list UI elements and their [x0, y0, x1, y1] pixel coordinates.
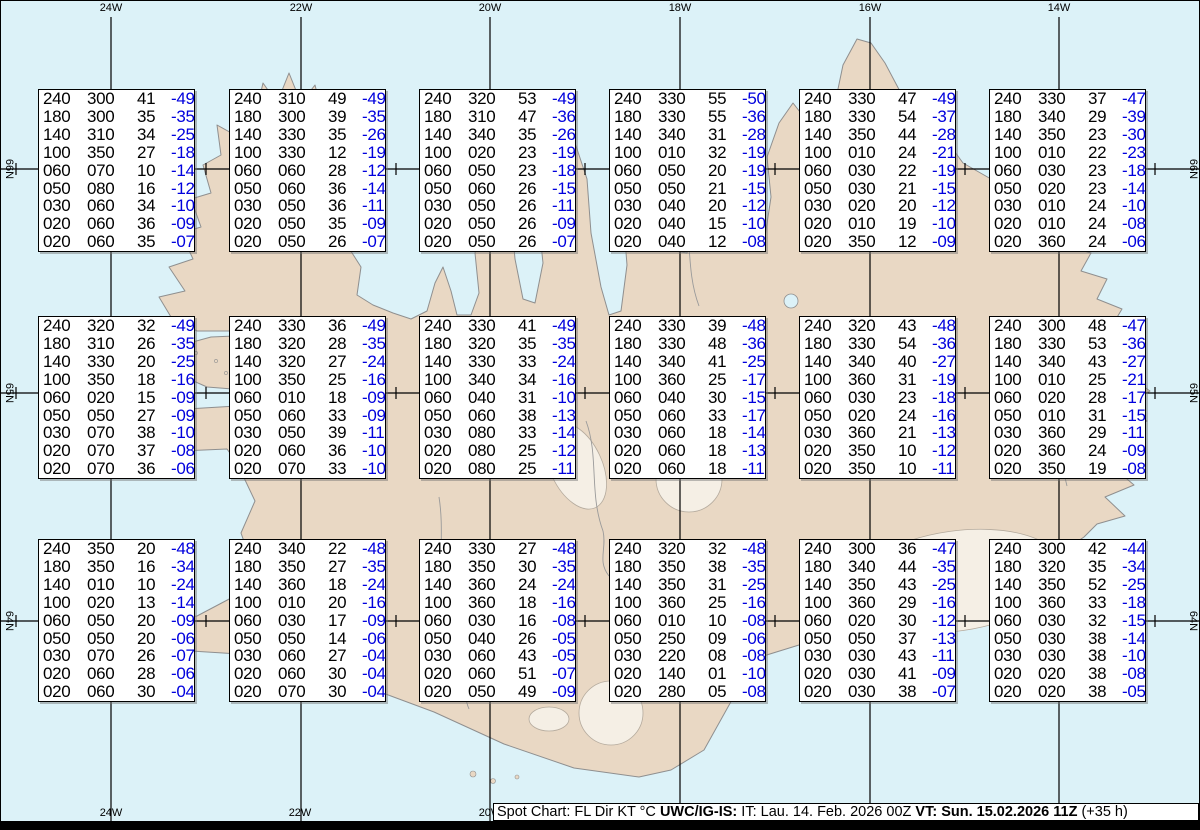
fl-value: 100 — [804, 144, 848, 162]
spot-box: 24032032-4818035038-3514035031-251003602… — [609, 539, 766, 702]
fl-value: 020 — [614, 460, 658, 478]
temp-value: -19 — [742, 162, 766, 180]
dir-value: 250 — [658, 630, 708, 648]
kt-value: 15 — [708, 215, 742, 233]
kt-value: 17 — [328, 612, 362, 630]
spot-row: 05025009-06 — [614, 630, 765, 648]
fl-value: 020 — [994, 442, 1038, 460]
spot-row: 03003043-11 — [804, 647, 955, 665]
dir-value: 360 — [278, 576, 328, 594]
kt-value: 35 — [518, 335, 552, 353]
fl-value: 020 — [804, 460, 848, 478]
dir-value: 070 — [87, 647, 137, 665]
kt-value: 10 — [137, 162, 171, 180]
fl-value: 020 — [424, 665, 468, 683]
temp-value: -11 — [552, 460, 575, 478]
fl-value: 100 — [994, 144, 1038, 162]
kt-value: 29 — [1088, 108, 1122, 126]
fl-value: 240 — [804, 90, 848, 108]
kt-value: 36 — [328, 180, 362, 198]
dir-value: 020 — [848, 407, 898, 425]
dir-value: 050 — [848, 630, 898, 648]
kt-value: 31 — [518, 389, 552, 407]
dir-value: 060 — [278, 442, 328, 460]
fl-value: 240 — [994, 90, 1038, 108]
dir-value: 330 — [468, 540, 518, 558]
spot-row: 24033037-47 — [994, 90, 1145, 108]
temp-value: -49 — [171, 90, 195, 108]
dir-value: 050 — [278, 197, 328, 215]
spot-row: 18033055-36 — [614, 108, 765, 126]
spot-row: 14031034-25 — [43, 126, 194, 144]
dir-value: 340 — [1038, 108, 1088, 126]
dir-value: 300 — [1038, 317, 1088, 335]
temp-value: -35 — [362, 108, 386, 126]
fl-value: 140 — [994, 353, 1038, 371]
temp-value: -16 — [552, 594, 576, 612]
spot-row: 02005035-09 — [234, 215, 385, 233]
kt-value: 26 — [518, 197, 552, 215]
fl-value: 140 — [424, 353, 468, 371]
dir-value: 360 — [848, 424, 898, 442]
kt-value: 10 — [898, 460, 932, 478]
fl-value: 240 — [424, 317, 468, 335]
kt-value: 34 — [518, 371, 552, 389]
temp-value: -24 — [552, 576, 576, 594]
kt-value: 24 — [1088, 442, 1122, 460]
spot-row: 14033020-25 — [43, 353, 194, 371]
spot-box: 24030036-4718034044-3514035043-251003602… — [799, 539, 956, 702]
dir-value: 340 — [468, 126, 518, 144]
longitude-label: 14W — [1048, 2, 1071, 14]
spot-row: 14036024-24 — [424, 576, 575, 594]
kt-value: 29 — [1088, 424, 1122, 442]
kt-value: 39 — [708, 317, 742, 335]
fl-value: 060 — [614, 612, 658, 630]
fl-value: 180 — [614, 335, 658, 353]
kt-value: 20 — [898, 197, 932, 215]
temp-value: -16 — [552, 371, 576, 389]
spot-row: 02001019-10 — [804, 215, 955, 233]
fl-value: 020 — [43, 233, 87, 251]
fl-value: 240 — [234, 317, 278, 335]
fl-value: 020 — [234, 683, 278, 701]
fl-value: 060 — [614, 389, 658, 407]
spot-row: 06003017-09 — [234, 612, 385, 630]
kt-value: 15 — [137, 389, 171, 407]
temp-value: -04 — [362, 665, 386, 683]
fl-value: 020 — [994, 460, 1038, 478]
spot-row: 18031047-36 — [424, 108, 575, 126]
dir-value: 010 — [87, 576, 137, 594]
temp-value: -08 — [742, 233, 766, 251]
temp-value: -10 — [171, 197, 195, 215]
fl-value: 140 — [614, 126, 658, 144]
fl-value: 020 — [424, 215, 468, 233]
dir-value: 360 — [1038, 424, 1088, 442]
dir-value: 020 — [1038, 665, 1088, 683]
kt-value: 53 — [1088, 335, 1122, 353]
fl-value: 060 — [804, 389, 848, 407]
longitude-label: 24W — [100, 807, 123, 819]
dir-value: 350 — [1038, 576, 1088, 594]
spot-row: 06003032-15 — [994, 612, 1145, 630]
spot-box: 24032043-4818033054-3614034040-271003603… — [799, 316, 956, 479]
kt-value: 38 — [898, 683, 932, 701]
spot-row: 10001020-16 — [234, 594, 385, 612]
fl-value: 060 — [804, 612, 848, 630]
spot-row: 24033047-49 — [804, 90, 955, 108]
temp-value: -10 — [932, 215, 956, 233]
kt-value: 16 — [137, 558, 171, 576]
kt-value: 20 — [328, 594, 362, 612]
fl-value: 140 — [804, 126, 848, 144]
dir-value: 010 — [1038, 215, 1088, 233]
latitude-label: 64N — [1187, 611, 1199, 631]
temp-value: -30 — [1122, 126, 1146, 144]
fl-value: 030 — [614, 197, 658, 215]
spot-row: 05002023-14 — [994, 180, 1145, 198]
kt-value: 26 — [518, 233, 552, 251]
temp-value: -09 — [171, 215, 195, 233]
dir-value: 300 — [1038, 540, 1088, 558]
dir-value: 020 — [87, 594, 137, 612]
fl-value: 180 — [43, 335, 87, 353]
fl-value: 100 — [994, 594, 1038, 612]
dir-value: 020 — [848, 612, 898, 630]
kt-value: 09 — [708, 630, 742, 648]
fl-value: 060 — [804, 162, 848, 180]
spot-row: 02006018-13 — [614, 442, 765, 460]
temp-value: -10 — [742, 665, 766, 683]
spot-row: 10001025-21 — [994, 371, 1145, 389]
dir-value: 010 — [848, 215, 898, 233]
kt-value: 12 — [708, 233, 742, 251]
kt-value: 27 — [137, 144, 171, 162]
dir-value: 070 — [87, 460, 137, 478]
temp-value: -35 — [552, 335, 576, 353]
spot-row: 03005036-11 — [234, 197, 385, 215]
fl-value: 020 — [43, 683, 87, 701]
spot-row: 05005037-13 — [804, 630, 955, 648]
spot-row: 14034035-26 — [424, 126, 575, 144]
spot-row: 14032027-24 — [234, 353, 385, 371]
spot-row: 03005026-11 — [424, 197, 575, 215]
kt-value: 33 — [328, 460, 362, 478]
spot-row: 18034029-39 — [994, 108, 1145, 126]
bottom-border-bar — [1, 821, 1199, 829]
dir-value: 320 — [468, 335, 518, 353]
fl-value: 140 — [424, 576, 468, 594]
spot-row: 02002038-08 — [994, 665, 1145, 683]
kt-value: 18 — [518, 594, 552, 612]
spot-row: 02035010-12 — [804, 442, 955, 460]
spot-box: 24033047-4918033054-3714035044-281000102… — [799, 89, 956, 252]
fl-value: 050 — [424, 630, 468, 648]
kt-value: 53 — [518, 90, 552, 108]
dir-value: 040 — [658, 389, 708, 407]
kt-value: 31 — [708, 576, 742, 594]
kt-value: 22 — [898, 162, 932, 180]
dir-value: 340 — [658, 126, 708, 144]
longitude-label: 24W — [100, 2, 123, 14]
dir-value: 140 — [658, 665, 708, 683]
spot-row: 24033027-48 — [424, 540, 575, 558]
kt-value: 44 — [898, 558, 932, 576]
fl-value: 020 — [804, 442, 848, 460]
spot-row: 02007030-04 — [234, 683, 385, 701]
kt-value: 27 — [137, 407, 171, 425]
temp-value: -08 — [742, 647, 766, 665]
kt-value: 27 — [328, 558, 362, 576]
spot-row: 18031026-35 — [43, 335, 194, 353]
spot-row: 18030035-35 — [43, 108, 194, 126]
spot-row: 05001031-15 — [994, 407, 1145, 425]
spot-row: 03007038-10 — [43, 424, 194, 442]
temp-value: -13 — [932, 424, 956, 442]
dir-value: 010 — [658, 144, 708, 162]
dir-value: 320 — [848, 317, 898, 335]
spot-box: 24030041-4918030035-3514031034-251003502… — [38, 89, 195, 252]
temp-value: -06 — [171, 665, 195, 683]
kt-value: 21 — [898, 180, 932, 198]
fl-value: 240 — [994, 540, 1038, 558]
dir-value: 030 — [1038, 612, 1088, 630]
temp-value: -14 — [1122, 630, 1146, 648]
dir-value: 060 — [468, 647, 518, 665]
fl-value: 240 — [994, 317, 1038, 335]
fl-value: 050 — [234, 407, 278, 425]
kt-value: 30 — [708, 389, 742, 407]
kt-value: 20 — [708, 162, 742, 180]
spot-row: 06006028-12 — [234, 162, 385, 180]
spot-row: 10036033-18 — [994, 594, 1145, 612]
temp-value: -10 — [1122, 197, 1146, 215]
spot-row: 18032028-35 — [234, 335, 385, 353]
spot-row: 02028005-08 — [614, 683, 765, 701]
dir-value: 340 — [658, 353, 708, 371]
spot-box: 24033041-4918032035-3514033033-241003403… — [419, 316, 576, 479]
kt-value: 38 — [1088, 647, 1122, 665]
fl-value: 060 — [43, 612, 87, 630]
spot-row: 05006033-09 — [234, 407, 385, 425]
fl-value: 050 — [994, 180, 1038, 198]
kt-value: 35 — [328, 126, 362, 144]
dir-value: 040 — [658, 197, 708, 215]
kt-value: 43 — [898, 647, 932, 665]
fl-value: 020 — [994, 215, 1038, 233]
dir-value: 020 — [848, 197, 898, 215]
spot-row: 02003038-07 — [804, 683, 955, 701]
temp-value: -27 — [1122, 353, 1146, 371]
kt-value: 16 — [137, 180, 171, 198]
temp-value: -34 — [1122, 558, 1146, 576]
fl-value: 140 — [234, 576, 278, 594]
kt-value: 25 — [708, 371, 742, 389]
fl-value: 020 — [43, 442, 87, 460]
dir-value: 350 — [87, 144, 137, 162]
spot-row: 05003021-15 — [804, 180, 955, 198]
temp-value: -36 — [1122, 335, 1146, 353]
kt-value: 10 — [137, 576, 171, 594]
dir-value: 340 — [848, 558, 898, 576]
fl-value: 180 — [804, 335, 848, 353]
dir-value: 030 — [1038, 162, 1088, 180]
dir-value: 020 — [87, 389, 137, 407]
spot-row: 06005020-19 — [614, 162, 765, 180]
spot-box: 24032032-4918031026-3514033020-251003501… — [38, 316, 195, 479]
dir-value: 060 — [658, 407, 708, 425]
spot-row: 02005026-07 — [424, 233, 575, 251]
fl-value: 180 — [804, 558, 848, 576]
dir-value: 330 — [658, 317, 708, 335]
kt-value: 25 — [708, 594, 742, 612]
kt-value: 30 — [328, 665, 362, 683]
spot-row: 02005049-09 — [424, 683, 575, 701]
kt-value: 21 — [898, 424, 932, 442]
kt-value: 41 — [898, 665, 932, 683]
dir-value: 060 — [278, 162, 328, 180]
spot-row: 10034034-16 — [424, 371, 575, 389]
spot-row: 06003023-18 — [804, 389, 955, 407]
spot-row: 24030048-47 — [994, 317, 1145, 335]
dir-value: 050 — [278, 233, 328, 251]
spot-row: 24032032-49 — [43, 317, 194, 335]
spot-row: 18032035-34 — [994, 558, 1145, 576]
fl-value: 030 — [424, 197, 468, 215]
fl-value: 050 — [614, 630, 658, 648]
fl-value: 050 — [234, 630, 278, 648]
spot-row: 06005023-18 — [424, 162, 575, 180]
fl-value: 030 — [424, 424, 468, 442]
temp-value: -14 — [742, 424, 766, 442]
dir-value: 350 — [848, 233, 898, 251]
fl-value: 030 — [614, 647, 658, 665]
temp-value: -08 — [552, 612, 576, 630]
spot-row: 14034040-27 — [804, 353, 955, 371]
temp-value: -12 — [932, 442, 956, 460]
kt-value: 24 — [1088, 233, 1122, 251]
spot-row: 18030039-35 — [234, 108, 385, 126]
fl-value: 180 — [614, 558, 658, 576]
temp-value: -23 — [1122, 144, 1146, 162]
fl-value: 140 — [994, 576, 1038, 594]
temp-value: -10 — [552, 389, 576, 407]
kt-value: 55 — [708, 108, 742, 126]
latitude-label: 65N — [3, 383, 15, 403]
spot-row: 24034022-48 — [234, 540, 385, 558]
spot-row: 24030036-47 — [804, 540, 955, 558]
fl-value: 030 — [994, 424, 1038, 442]
temp-value: -09 — [552, 215, 576, 233]
kt-value: 41 — [708, 353, 742, 371]
kt-value: 18 — [328, 576, 362, 594]
spot-row: 02006036-09 — [43, 215, 194, 233]
kt-value: 37 — [1088, 90, 1122, 108]
spot-row: 10035025-16 — [234, 371, 385, 389]
dir-value: 010 — [1038, 371, 1088, 389]
latitude-label: 66N — [3, 159, 15, 179]
temp-value: -26 — [552, 126, 576, 144]
kt-value: 26 — [518, 215, 552, 233]
temp-value: -15 — [552, 180, 576, 198]
fl-value: 180 — [234, 335, 278, 353]
temp-value: -18 — [552, 162, 576, 180]
temp-value: -19 — [552, 144, 576, 162]
fl-value: 030 — [424, 647, 468, 665]
temp-value: -24 — [362, 353, 386, 371]
fl-value: 020 — [43, 665, 87, 683]
fl-value: 060 — [234, 389, 278, 407]
spot-row: 05002024-16 — [804, 407, 955, 425]
kt-value: 35 — [137, 233, 171, 251]
fl-value: 060 — [424, 612, 468, 630]
spot-box: 24030048-4718033053-3614034043-271000102… — [989, 316, 1146, 479]
kt-value: 37 — [137, 442, 171, 460]
longitude-label: 16W — [859, 2, 882, 14]
spot-row: 05004026-05 — [424, 630, 575, 648]
dir-value: 050 — [87, 630, 137, 648]
fl-value: 100 — [43, 371, 87, 389]
kt-value: 25 — [328, 371, 362, 389]
temp-value: -49 — [552, 90, 576, 108]
temp-value: -49 — [171, 317, 195, 335]
dir-value: 050 — [278, 630, 328, 648]
spot-row: 03001024-10 — [994, 197, 1145, 215]
temp-value: -48 — [552, 540, 576, 558]
stage: 24030041-4918030035-3514031034-251003502… — [0, 0, 1200, 830]
temp-value: -47 — [1122, 317, 1146, 335]
temp-value: -35 — [171, 335, 195, 353]
dir-value: 070 — [278, 460, 328, 478]
dir-value: 070 — [87, 442, 137, 460]
fl-value: 020 — [614, 233, 658, 251]
spot-row: 05003038-14 — [994, 630, 1145, 648]
spot-row: 14035031-25 — [614, 576, 765, 594]
spot-box: 24033037-4718034029-3914035023-301000102… — [989, 89, 1146, 252]
fl-value: 240 — [614, 90, 658, 108]
dir-value: 080 — [468, 460, 518, 478]
dir-value: 350 — [1038, 460, 1088, 478]
spot-row: 02006028-06 — [43, 665, 194, 683]
dir-value: 060 — [87, 233, 137, 251]
fl-value: 030 — [804, 197, 848, 215]
spot-row: 24033041-49 — [424, 317, 575, 335]
fl-value: 140 — [614, 353, 658, 371]
dir-value: 330 — [658, 335, 708, 353]
fl-value: 140 — [994, 126, 1038, 144]
fl-value: 020 — [614, 442, 658, 460]
kt-value: 30 — [328, 683, 362, 701]
temp-value: -25 — [742, 353, 766, 371]
dir-value: 330 — [1038, 90, 1088, 108]
spot-row: 02006030-04 — [43, 683, 194, 701]
temp-value: -17 — [742, 407, 766, 425]
fl-value: 020 — [614, 215, 658, 233]
dir-value: 330 — [848, 335, 898, 353]
spot-row: 02006051-07 — [424, 665, 575, 683]
dir-value: 350 — [848, 460, 898, 478]
kt-value: 19 — [898, 215, 932, 233]
temp-value: -14 — [552, 424, 576, 442]
dir-value: 330 — [278, 126, 328, 144]
kt-value: 55 — [708, 90, 742, 108]
fl-value: 100 — [804, 594, 848, 612]
temp-value: -06 — [171, 460, 195, 478]
spot-row: 02005026-09 — [424, 215, 575, 233]
fl-value: 240 — [43, 90, 87, 108]
fl-value: 240 — [804, 317, 848, 335]
